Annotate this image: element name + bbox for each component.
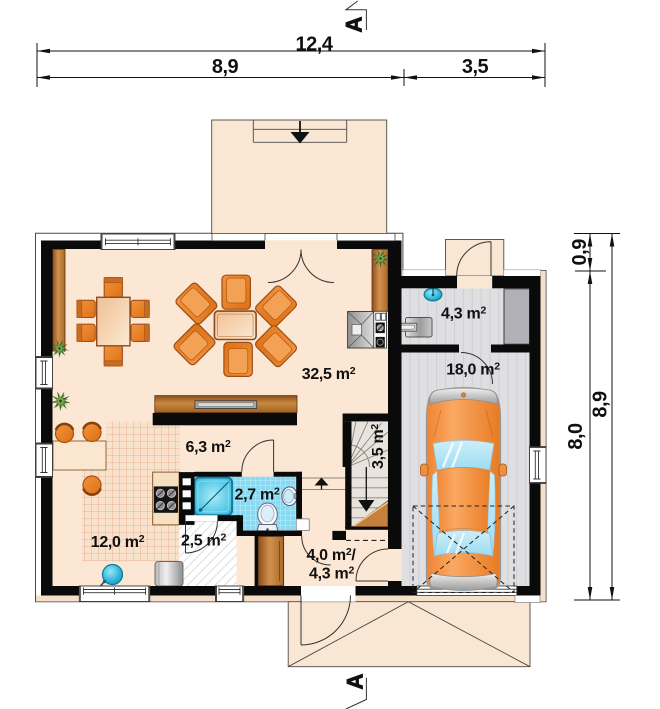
svg-text:0,9: 0,9 xyxy=(569,239,591,266)
svg-text:3,5 m2: 3,5 m2 xyxy=(369,424,387,469)
svg-text:8,9: 8,9 xyxy=(212,56,239,78)
svg-text:2,7 m2: 2,7 m2 xyxy=(235,486,280,504)
svg-text:8,0: 8,0 xyxy=(565,423,587,450)
svg-text:32,5 m2: 32,5 m2 xyxy=(302,365,356,383)
svg-text:12,4: 12,4 xyxy=(296,34,334,56)
svg-text:2,5 m2: 2,5 m2 xyxy=(181,532,226,550)
svg-text:18,0 m2: 18,0 m2 xyxy=(446,361,500,379)
svg-text:6,3 m2: 6,3 m2 xyxy=(186,438,231,456)
svg-text:4,3 m2: 4,3 m2 xyxy=(309,565,354,583)
svg-text:12,0 m2: 12,0 m2 xyxy=(91,533,145,551)
svg-text:A: A xyxy=(343,673,368,689)
svg-text:8,9: 8,9 xyxy=(590,391,612,418)
svg-text:4,3 m2: 4,3 m2 xyxy=(441,305,486,323)
svg-text:3,5: 3,5 xyxy=(462,56,489,78)
svg-text:A: A xyxy=(342,16,367,32)
